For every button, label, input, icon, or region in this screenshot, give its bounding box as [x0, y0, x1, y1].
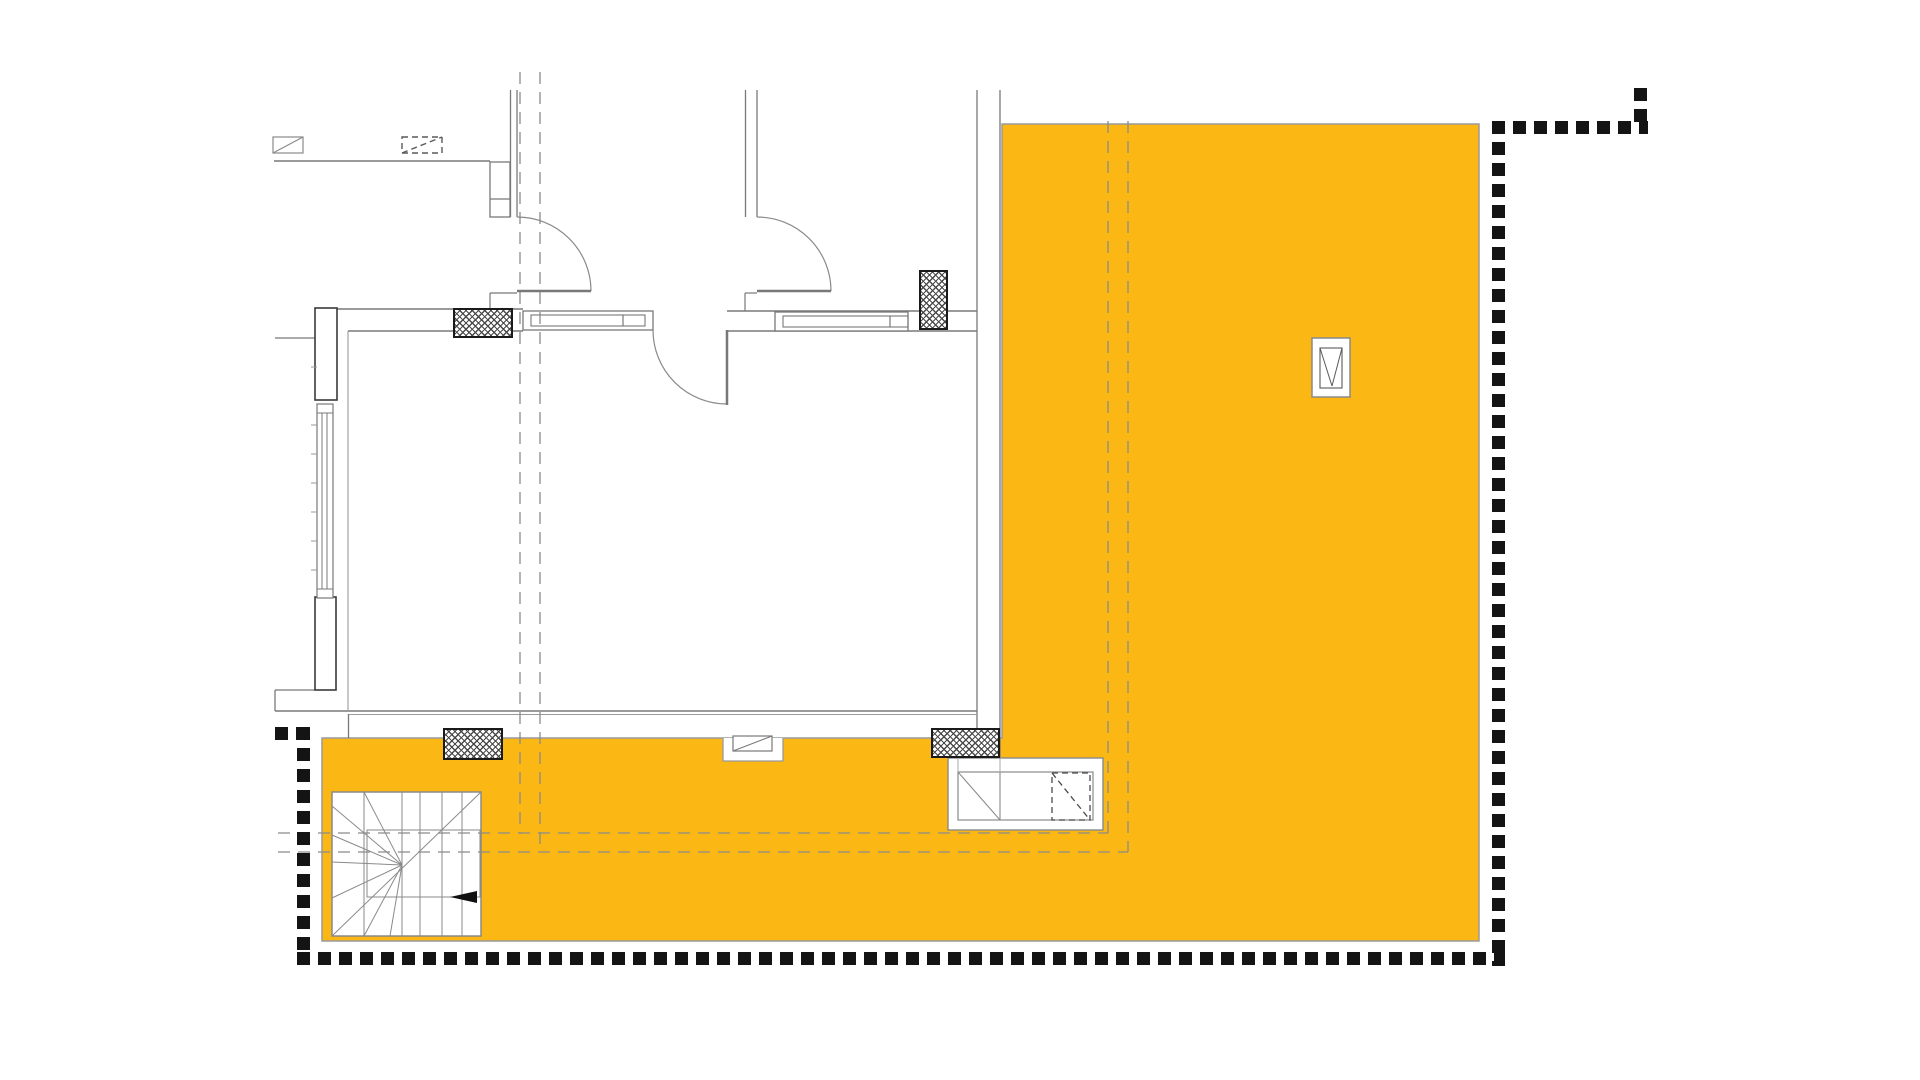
boundary-stub-top-left: [275, 727, 310, 740]
door-arc-1: [517, 217, 591, 291]
section-symbol-solid-diag: [273, 137, 303, 153]
boundary-top-run: [1492, 121, 1648, 134]
plan-drawing: [0, 0, 1920, 1080]
hatched-pier-top-left: [453, 308, 513, 338]
pier-west-lower: [315, 597, 336, 690]
window-top-1-frame: [523, 311, 653, 330]
wall-jamb-box: [490, 162, 510, 217]
door-arc-3: [653, 330, 727, 404]
window-west-frame: [317, 404, 333, 598]
boundary-left-run: [297, 727, 310, 965]
hatched-pier-top-right: [919, 270, 948, 330]
terrace-highlight: [322, 124, 1479, 941]
door-arc-2: [757, 217, 831, 291]
section-symbol-dashed-diag: [402, 137, 442, 153]
pier-west-upper: [315, 308, 337, 400]
boundary-bottom-run: [297, 952, 1505, 965]
boundary-right-run: [1492, 121, 1505, 966]
hatched-pier-bottom-left: [443, 728, 503, 760]
floor-plan-canvas[interactable]: [0, 0, 1920, 1080]
hatched-pier-bottom-right: [931, 728, 1000, 758]
skylight-pad: [948, 758, 1103, 830]
window-top-2-frame: [775, 312, 908, 331]
